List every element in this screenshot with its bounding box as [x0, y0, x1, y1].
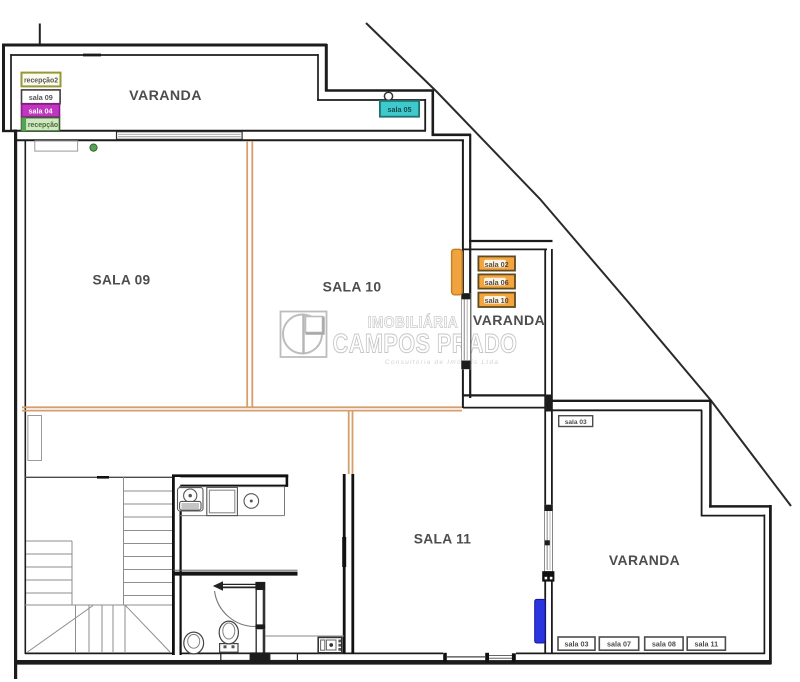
- svg-text:sala 08: sala 08: [652, 640, 676, 649]
- svg-text:sala 09: sala 09: [29, 93, 53, 102]
- svg-text:VARANDA: VARANDA: [129, 88, 202, 104]
- svg-text:sala 05: sala 05: [388, 105, 412, 114]
- svg-text:sala 03: sala 03: [565, 640, 589, 649]
- svg-text:SALA 09: SALA 09: [93, 273, 151, 288]
- svg-text:sala 10: sala 10: [485, 296, 509, 305]
- svg-text:sala 11: sala 11: [695, 640, 719, 649]
- svg-text:SALA 11: SALA 11: [414, 531, 472, 546]
- svg-text:sala 07: sala 07: [607, 640, 631, 649]
- svg-text:Consultoria de Imóveis Ltda: Consultoria de Imóveis Ltda: [385, 359, 499, 366]
- svg-text:sala 03: sala 03: [565, 419, 587, 426]
- svg-text:CAMPOS PRADO: CAMPOS PRADO: [333, 329, 518, 359]
- svg-text:sala 04: sala 04: [29, 106, 53, 115]
- svg-text:sala 06: sala 06: [485, 278, 509, 287]
- svg-text:VARANDA: VARANDA: [609, 552, 680, 568]
- svg-text:recepção2: recepção2: [24, 77, 58, 84]
- svg-text:recepção: recepção: [28, 122, 58, 129]
- svg-text:sala 02: sala 02: [485, 260, 509, 269]
- svg-text:SALA 10: SALA 10: [323, 278, 382, 294]
- svg-text:VARANDA: VARANDA: [473, 312, 545, 328]
